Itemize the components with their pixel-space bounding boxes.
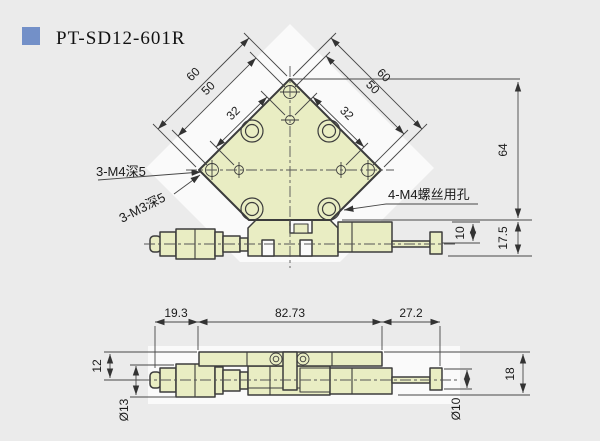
dim-12: 12	[90, 359, 104, 373]
dim-19-3: 19.3	[164, 306, 188, 320]
rod-end-cap	[430, 232, 442, 254]
base-slot	[300, 240, 312, 256]
drive-housing	[338, 222, 392, 252]
label-m4-holes: 3-M4深5	[96, 164, 146, 179]
dim-base-17-5: 17.5	[496, 226, 510, 250]
clamp-block	[294, 224, 308, 233]
drive-housing	[330, 368, 392, 394]
title-block: PT-SD12-601R	[22, 27, 186, 49]
base-slot	[262, 240, 274, 256]
dim-27-2: 27.2	[399, 306, 423, 320]
top-view: 60 50 32 60 50 32 64 17.5 10 3-M4深5 3-M3…	[96, 24, 532, 268]
dim-left-50: 50	[198, 78, 218, 98]
micrometer-sleeve	[215, 367, 223, 394]
micrometer-spindle	[240, 372, 248, 389]
center-tab	[283, 352, 297, 390]
dim-dia10: Ø10	[449, 397, 463, 420]
page-title: PT-SD12-601R	[56, 28, 186, 49]
dim-82-73: 82.73	[275, 306, 305, 320]
side-view: 19.3 82.73 27.2 12 Ø13 Ø10 18	[90, 306, 530, 421]
micrometer-spindle	[240, 238, 248, 251]
rod-end-cap	[430, 368, 442, 390]
micrometer-barrel	[223, 370, 240, 391]
dim-height-64: 64	[496, 143, 510, 157]
label-screw-holes: 4-M4螺丝用孔	[388, 187, 470, 202]
dim-rod-10: 10	[453, 226, 467, 240]
dim-left-60: 60	[183, 64, 203, 84]
brand-square	[22, 27, 40, 45]
dim-dia13: Ø13	[117, 398, 131, 421]
dim-18: 18	[503, 367, 517, 381]
label-m3-holes: 3-M3深5	[117, 190, 168, 226]
technical-drawing: PT-SD12-601R	[0, 0, 600, 441]
